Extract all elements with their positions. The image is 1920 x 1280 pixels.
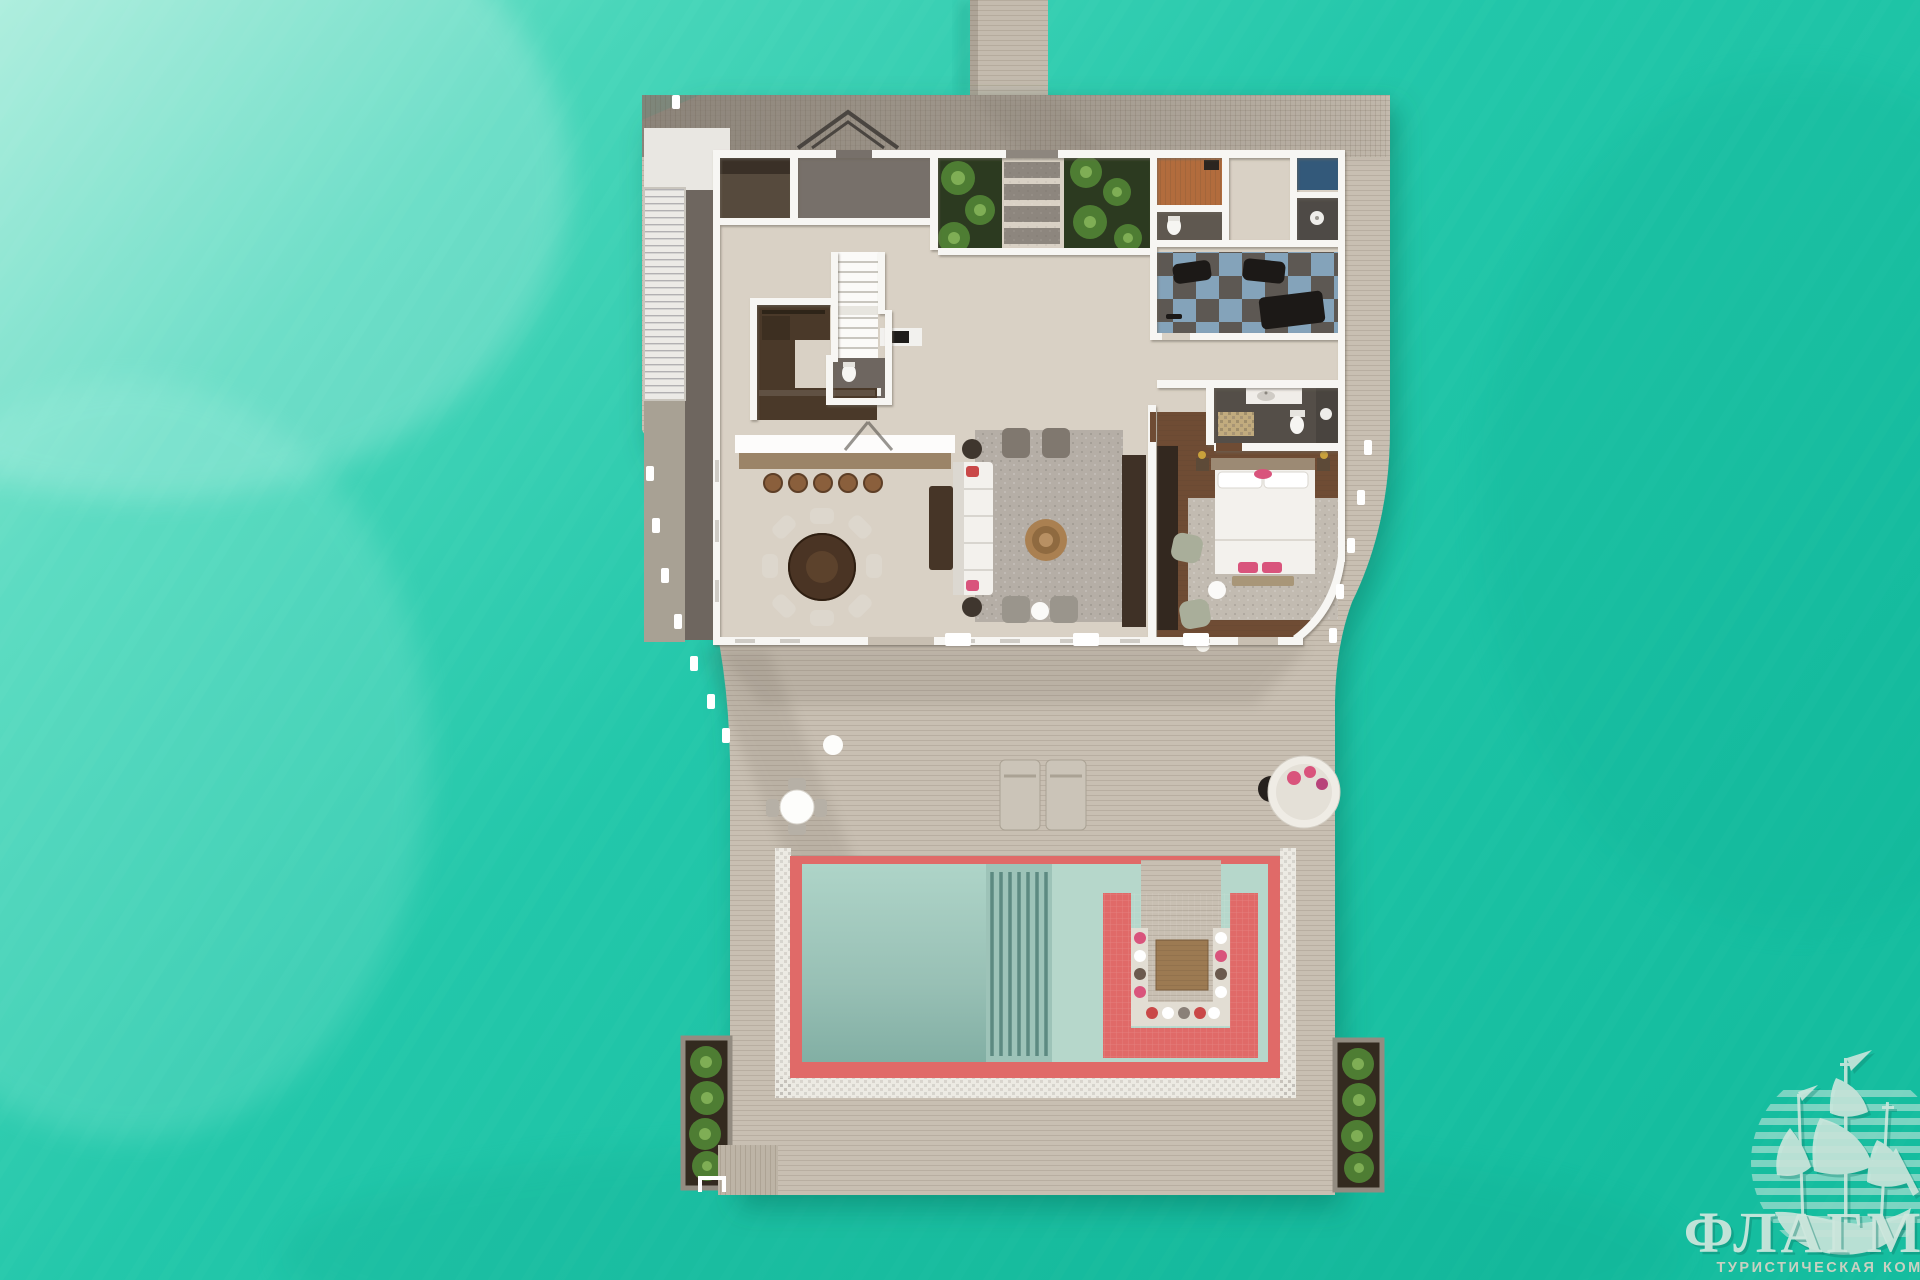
side-table [1208, 581, 1226, 599]
coffee-table [929, 486, 953, 570]
wicker-tray [1025, 519, 1067, 561]
armchair [1050, 596, 1078, 623]
pouf [962, 597, 982, 617]
watermark-title: ФЛАГМАН [1684, 1200, 1920, 1265]
pergola-roof [644, 188, 685, 400]
armchair [1002, 428, 1030, 458]
sun-lounger [1046, 760, 1086, 830]
shower-room [1295, 196, 1338, 240]
lamp [1198, 451, 1206, 459]
stepping-stones [1004, 158, 1060, 250]
side-table [1031, 602, 1049, 620]
toilet-room [1157, 212, 1222, 240]
staircase [838, 252, 878, 360]
pier [958, 0, 1048, 98]
sofa-pillow [966, 580, 979, 591]
sun-lounger [1000, 760, 1040, 830]
pool-area [775, 848, 1296, 1098]
sauna [1157, 158, 1222, 205]
nightstand [1196, 458, 1209, 471]
lamp [1320, 451, 1328, 459]
deck-dot-table [823, 735, 843, 755]
round-daybed [1268, 756, 1340, 828]
pool-steps [992, 872, 1046, 1056]
lounge-table [1156, 940, 1208, 990]
planter [1335, 1040, 1382, 1190]
nightstand [1317, 458, 1330, 471]
bed [1211, 458, 1315, 586]
pouf [962, 439, 982, 459]
garden-court [938, 156, 1150, 254]
roof-walkway [642, 95, 1390, 157]
armchair [1002, 596, 1030, 623]
armchair [1042, 428, 1070, 458]
vanity [1246, 388, 1302, 404]
glass-floor-nook [1297, 158, 1338, 190]
watermark-subtitle: ТУРИСТИЧЕСКАЯ КОМПАНИЯ [1717, 1260, 1920, 1276]
gym [1157, 252, 1338, 333]
entry-vestibule [798, 158, 930, 218]
pool-water [802, 864, 992, 1062]
floor-plan-render: ФЛАГМАН ФЛАГМАН ТУРИСТИЧЕСКАЯ КОМПАНИЯ [0, 0, 1920, 1280]
interior-floors [713, 150, 1345, 652]
sofa-pillow [966, 466, 979, 477]
tv-console [1122, 455, 1146, 627]
sofa [953, 462, 993, 595]
sunken-lounge [1103, 893, 1258, 1058]
shower-head [1320, 408, 1332, 420]
bathroom [1214, 388, 1338, 445]
